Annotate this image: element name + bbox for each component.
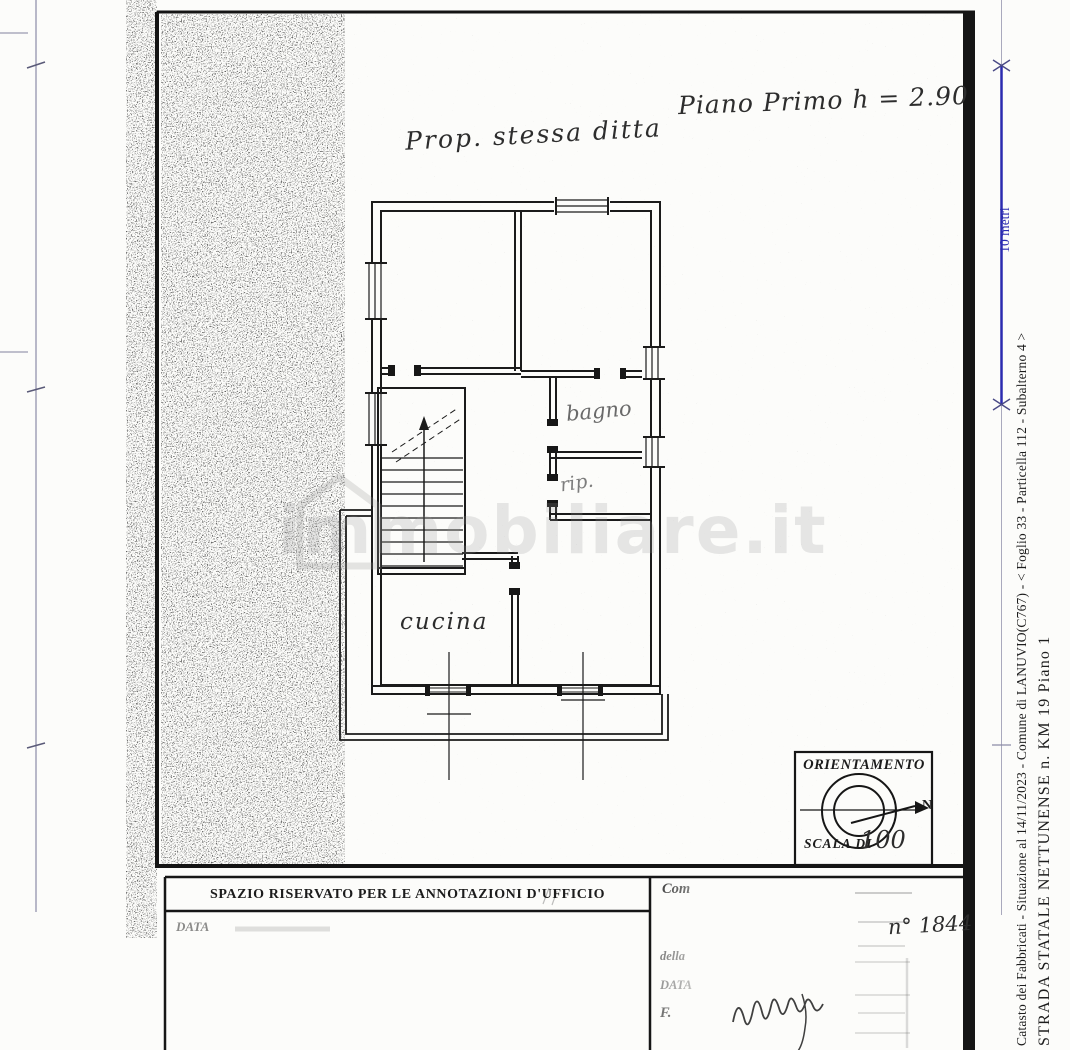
office-annotations-title: SPAZIO RISERVATO PER LE ANNOTAZIONI D'UF… xyxy=(165,877,650,912)
cadastral-reference-line: Catasto dei Fabbricati - Situazione al 1… xyxy=(1014,231,1030,1046)
left-margin-line xyxy=(0,0,45,912)
scale-value: 100 xyxy=(860,826,906,854)
protocol-number: n° 1844 xyxy=(887,911,972,939)
scale-bar-label: 10 metri xyxy=(997,168,1013,292)
signature xyxy=(733,994,823,1050)
scale-bar xyxy=(992,0,1011,915)
firma-label: F. xyxy=(660,1005,671,1022)
watermark-text: immobiliare.it xyxy=(278,492,798,569)
compiler-label: Com xyxy=(662,881,782,898)
address-line: STRADA STATALE NETTUNENSE n. KM 19 Piano… xyxy=(1036,346,1054,1046)
cadastral-floor-plan-sheet: Prop. stessa ditta Piano Primo h = 2.90 … xyxy=(0,0,1070,1050)
della-label: della xyxy=(660,949,770,964)
orientation-title: ORIENTAMENTO xyxy=(799,757,929,774)
north-label: N xyxy=(922,798,932,814)
room-label-cucina: cucina xyxy=(400,609,488,635)
date-label: DATA xyxy=(176,919,209,935)
panel-date-label: DATA xyxy=(660,978,770,993)
